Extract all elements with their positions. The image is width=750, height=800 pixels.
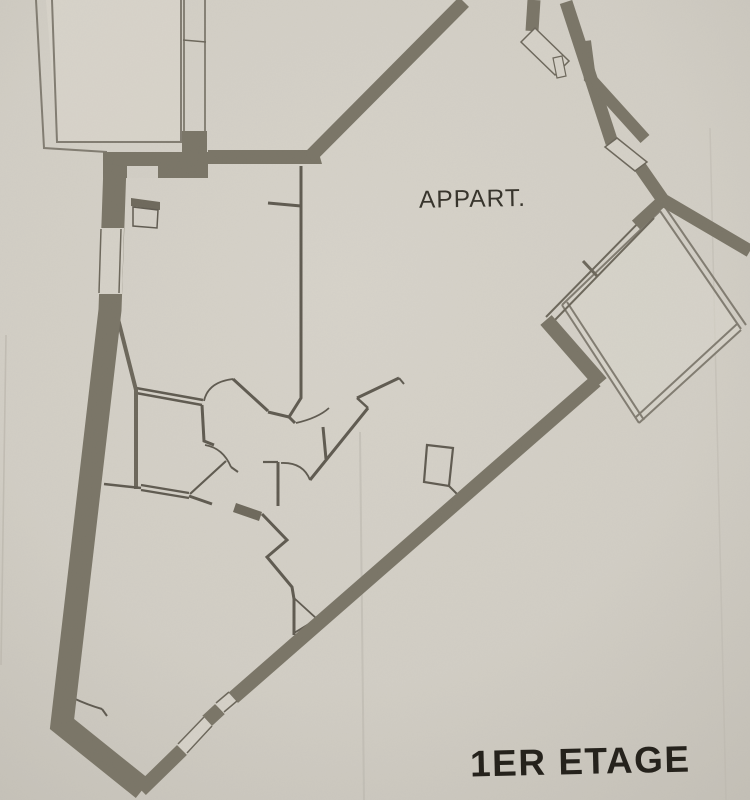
floor-plan-svg: APPART. 1ER ETAGE (0, 0, 750, 800)
floor-plan-page: APPART. 1ER ETAGE (0, 0, 750, 800)
paper-grain (0, 0, 750, 800)
